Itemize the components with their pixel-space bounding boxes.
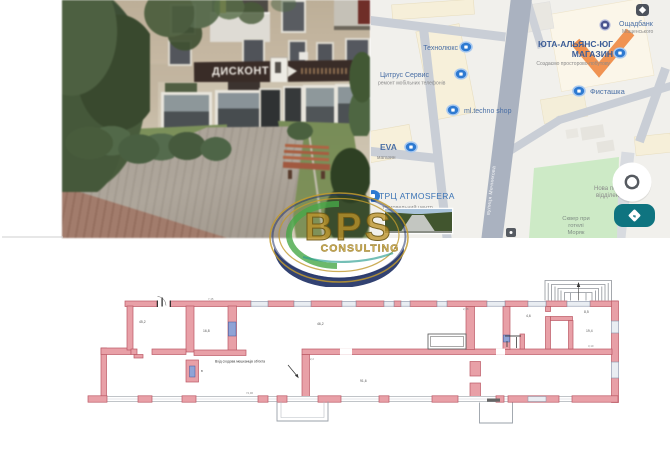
svg-text:74,96: 74,96 bbox=[246, 391, 253, 395]
svg-text:91,6: 91,6 bbox=[360, 379, 367, 383]
svg-text:3,10: 3,10 bbox=[588, 344, 594, 348]
svg-text:19,4: 19,4 bbox=[586, 329, 593, 333]
svg-text:Вхід сходова мешканців об'єкта: Вхід сходова мешканців об'єкта bbox=[215, 360, 265, 364]
svg-text:CONSULTING: CONSULTING bbox=[321, 243, 400, 255]
svg-text:4,6: 4,6 bbox=[526, 314, 531, 318]
svg-text:8,5: 8,5 bbox=[584, 310, 589, 314]
svg-text:16,8: 16,8 bbox=[203, 329, 210, 333]
svg-text:7,45: 7,45 bbox=[208, 297, 214, 301]
svg-text:45,2: 45,2 bbox=[139, 320, 146, 324]
svg-text:2,98: 2,98 bbox=[463, 307, 469, 311]
svg-text:2,2: 2,2 bbox=[310, 357, 314, 361]
svg-text:46,2: 46,2 bbox=[317, 322, 324, 326]
svg-text:в: в bbox=[201, 369, 203, 373]
